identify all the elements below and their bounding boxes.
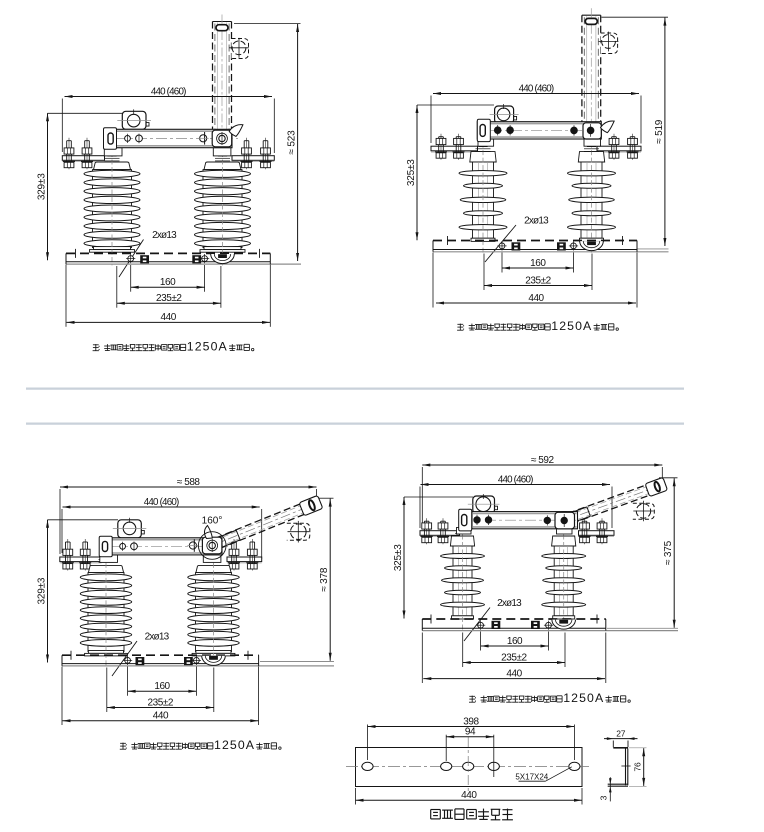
svg-text:235±2: 235±2: [525, 275, 551, 286]
svg-text:≈ 592: ≈ 592: [531, 455, 555, 466]
svg-text:3: 3: [599, 795, 609, 800]
svg-text:440: 440: [153, 711, 169, 722]
svg-text:≈ 523: ≈ 523: [287, 130, 298, 155]
svg-text:5X17X24: 5X17X24: [515, 772, 548, 781]
svg-text:2xø13: 2xø13: [497, 598, 522, 609]
svg-text:2xø13: 2xø13: [145, 631, 170, 642]
svg-text:440: 440: [161, 312, 177, 323]
svg-text:160: 160: [507, 636, 523, 647]
svg-text:160: 160: [530, 258, 546, 269]
svg-text:440 (460): 440 (460): [151, 86, 186, 97]
svg-text:27: 27: [616, 728, 625, 738]
svg-text:235±2: 235±2: [148, 697, 174, 708]
svg-text:2xø13: 2xø13: [152, 230, 177, 241]
svg-text:≈ 375: ≈ 375: [663, 540, 674, 565]
svg-text:≈ 519: ≈ 519: [654, 119, 665, 144]
svg-text:440 (460): 440 (460): [519, 83, 554, 94]
svg-text:325±3: 325±3: [406, 159, 417, 186]
svg-text:160°: 160°: [202, 516, 223, 527]
svg-text:440 (460): 440 (460): [498, 474, 533, 485]
svg-text:76: 76: [633, 762, 643, 772]
svg-text:329±3: 329±3: [37, 173, 48, 200]
svg-text:1250A: 1250A: [563, 691, 604, 705]
svg-text:≈ 378: ≈ 378: [319, 567, 330, 592]
svg-text:2xø13: 2xø13: [524, 215, 549, 226]
svg-text:1250A: 1250A: [214, 738, 255, 752]
svg-text:≈ 588: ≈ 588: [177, 477, 201, 488]
svg-text:325±3: 325±3: [393, 544, 404, 571]
svg-text:440: 440: [528, 293, 544, 304]
svg-text:329±3: 329±3: [37, 577, 48, 604]
svg-text:160: 160: [154, 681, 170, 692]
svg-text:440 (460): 440 (460): [144, 497, 179, 508]
svg-text:440: 440: [506, 668, 522, 679]
svg-text:235±2: 235±2: [156, 293, 182, 304]
svg-text:235±2: 235±2: [501, 652, 527, 663]
svg-text:1250A: 1250A: [187, 340, 228, 354]
svg-text:1250A: 1250A: [551, 319, 592, 333]
svg-text:440: 440: [461, 790, 477, 801]
svg-text:94: 94: [465, 727, 476, 738]
svg-text:160: 160: [160, 277, 176, 288]
